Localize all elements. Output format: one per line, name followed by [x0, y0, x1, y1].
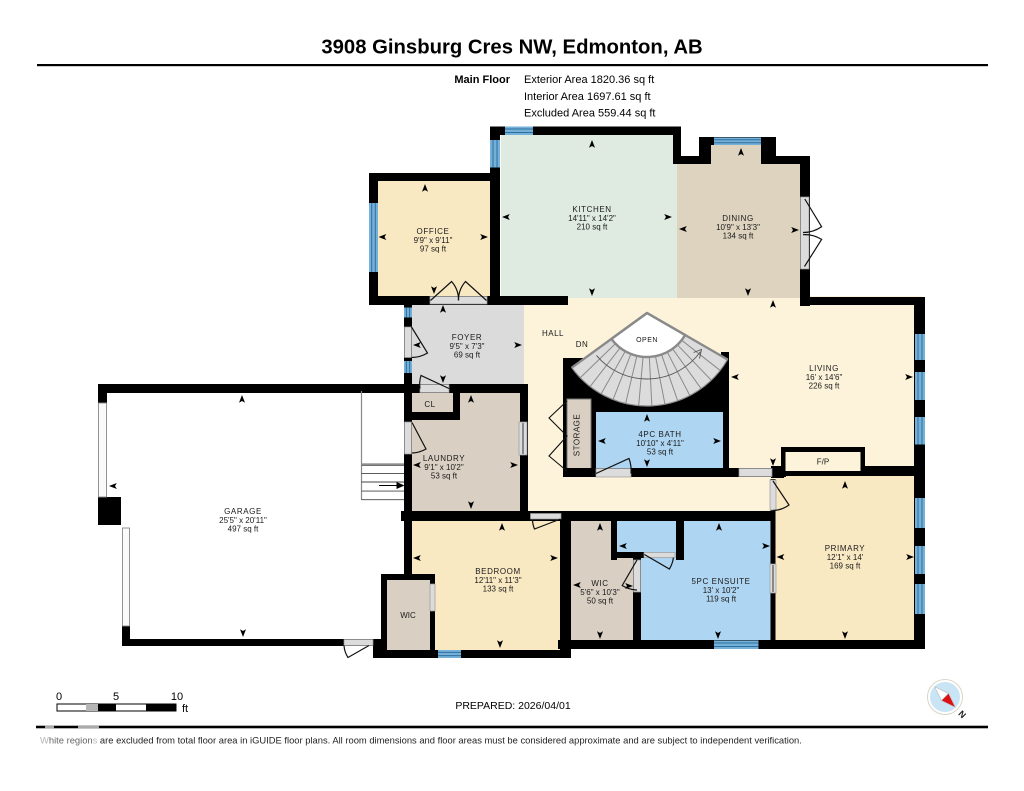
- svg-text:HALL: HALL: [542, 329, 564, 338]
- svg-text:5: 5: [113, 691, 119, 703]
- svg-text:119 sq ft: 119 sq ft: [706, 595, 737, 604]
- svg-text:9'5" x 7'3": 9'5" x 7'3": [450, 342, 485, 351]
- svg-text:9'1" x 10'2": 9'1" x 10'2": [424, 463, 464, 472]
- svg-text:LIVING: LIVING: [809, 364, 839, 373]
- svg-text:BEDROOM: BEDROOM: [475, 567, 521, 576]
- svg-text:3908 Ginsburg Cres NW, Edmonto: 3908 Ginsburg Cres NW, Edmonton, AB: [321, 37, 702, 59]
- svg-text:Main Floor: Main Floor: [454, 74, 510, 86]
- svg-text:WIC: WIC: [591, 579, 608, 588]
- svg-text:OFFICE: OFFICE: [417, 227, 450, 236]
- svg-text:9'9" x 9'11": 9'9" x 9'11": [414, 236, 453, 245]
- svg-text:OPEN: OPEN: [636, 337, 658, 344]
- svg-text:WIC: WIC: [400, 611, 416, 620]
- svg-text:25'5" x 20'11": 25'5" x 20'11": [219, 516, 267, 525]
- svg-text:4PC BATH: 4PC BATH: [638, 430, 681, 439]
- svg-text:133 sq ft: 133 sq ft: [483, 585, 514, 594]
- svg-text:CL: CL: [424, 400, 435, 409]
- svg-text:69 sq ft: 69 sq ft: [454, 351, 481, 360]
- svg-text:210 sq ft: 210 sq ft: [577, 223, 608, 232]
- svg-text:10: 10: [171, 691, 183, 703]
- svg-text:PREPARED: 2026/04/01: PREPARED: 2026/04/01: [455, 700, 571, 712]
- svg-text:Exterior Area 1820.36 sq ft: Exterior Area 1820.36 sq ft: [524, 74, 654, 86]
- svg-text:GARAGE: GARAGE: [224, 507, 262, 516]
- svg-text:97 sq ft: 97 sq ft: [420, 245, 447, 254]
- svg-text:ft: ft: [182, 703, 188, 715]
- svg-text:White regions are excluded fro: White regions are excluded from total fl…: [40, 735, 802, 746]
- svg-text:226 sq ft: 226 sq ft: [809, 382, 840, 391]
- svg-text:10'9" x 13'3": 10'9" x 13'3": [716, 223, 760, 232]
- svg-text:Interior Area 1697.61 sq ft: Interior Area 1697.61 sq ft: [524, 91, 651, 103]
- svg-text:14'11" x 14'2": 14'11" x 14'2": [568, 214, 616, 223]
- svg-text:0: 0: [56, 691, 62, 703]
- svg-text:497 sq ft: 497 sq ft: [228, 525, 259, 534]
- svg-text:50 sq ft: 50 sq ft: [587, 597, 614, 606]
- svg-text:12'1" x 14': 12'1" x 14': [827, 553, 864, 562]
- svg-text:STORAGE: STORAGE: [573, 414, 582, 456]
- svg-text:53 sq ft: 53 sq ft: [647, 448, 674, 457]
- svg-text:134 sq ft: 134 sq ft: [723, 232, 754, 241]
- svg-text:10'10" x 4'11": 10'10" x 4'11": [636, 439, 684, 448]
- svg-text:5'6" x 10'3": 5'6" x 10'3": [580, 588, 620, 597]
- svg-text:13' x 10'2": 13' x 10'2": [703, 586, 740, 595]
- svg-text:PRIMARY: PRIMARY: [825, 544, 866, 553]
- svg-text:169 sq ft: 169 sq ft: [830, 562, 861, 571]
- svg-text:DINING: DINING: [722, 214, 754, 223]
- svg-text:F/P: F/P: [817, 458, 829, 467]
- svg-text:KITCHEN: KITCHEN: [572, 205, 611, 214]
- svg-text:5PC ENSUITE: 5PC ENSUITE: [691, 577, 750, 586]
- svg-text:LAUNDRY: LAUNDRY: [423, 454, 465, 463]
- svg-text:DN: DN: [576, 340, 589, 349]
- svg-text:53 sq ft: 53 sq ft: [431, 472, 458, 481]
- svg-text:FOYER: FOYER: [452, 333, 483, 342]
- svg-text:16' x 14'6": 16' x 14'6": [806, 373, 843, 382]
- svg-text:12'11" x 11'3": 12'11" x 11'3": [474, 576, 521, 585]
- svg-text:Excluded Area 559.44 sq ft: Excluded Area 559.44 sq ft: [524, 108, 655, 120]
